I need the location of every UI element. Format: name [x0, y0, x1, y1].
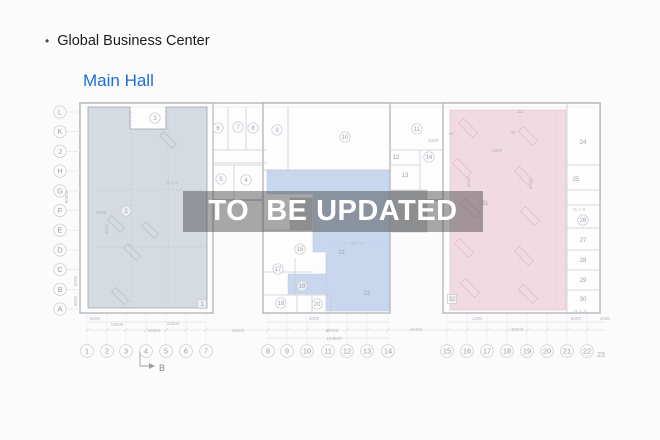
row-axis-label: K [57, 127, 62, 136]
room-number: 20 [314, 302, 321, 308]
col-axis-label: 20 [543, 347, 551, 356]
watermark-overlay: TO BE UPDATED [183, 191, 483, 232]
section-marker-arrow-icon [149, 363, 155, 369]
col-axis-label: 17 [483, 347, 491, 356]
room-number: 28 [580, 258, 587, 264]
plan-annotation: G + 3 [351, 241, 363, 247]
col-axis-label: 14 [384, 347, 392, 356]
section-marker-label: B [159, 363, 165, 373]
room-number: 19 [299, 284, 306, 290]
dimension-label: 6000 [466, 176, 471, 187]
col-axis-label: 15 [443, 347, 451, 356]
dimension-label: 36000 [148, 328, 161, 333]
row-axis-label: C [57, 265, 63, 274]
dimension-label: 1300 [472, 316, 483, 321]
room-number: 30 [580, 297, 587, 303]
dimension-label: 18000 [167, 321, 180, 326]
dimension-label: 18400 [410, 327, 423, 332]
col-axis-label: 22 [583, 347, 591, 356]
plan-annotation: 1000 [428, 138, 439, 144]
col-axis-label: 21 [563, 347, 571, 356]
col-axis-label: 7 [204, 347, 208, 356]
plan-annotation: G + 3 [574, 309, 586, 315]
dimension-label: 6000 [73, 295, 78, 306]
col-axis-label: 10 [303, 347, 311, 356]
col-axis-label: 12 [343, 347, 351, 356]
col-axis-label: 8 [266, 347, 270, 356]
room-number: 26 [580, 218, 587, 224]
room-number: 14 [426, 155, 433, 161]
dimension-label: 6000 [73, 275, 78, 286]
col-axis-label: 5 [164, 347, 168, 356]
room-number: 11 [414, 127, 421, 133]
plan-annotation: 1900 [492, 148, 503, 154]
plan-annotation: G + 3 [166, 180, 178, 186]
plan-annotation: 23 [517, 109, 523, 115]
row-axis-label: E [57, 226, 62, 235]
plan-annotation: 45° [510, 130, 517, 136]
room-number: 18 [278, 301, 285, 307]
col-axis-label: 11 [324, 347, 332, 356]
row-axis-label: D [57, 245, 63, 254]
row-axis-label: A [57, 305, 62, 314]
col-axis-label: 1 [85, 347, 89, 356]
dimension-label: 3000 [104, 223, 109, 234]
room-number: 29 [580, 278, 587, 284]
col-axis-label: 6 [184, 347, 188, 356]
col-axis-label: 4 [144, 347, 148, 356]
room-number: 32 [449, 297, 456, 303]
room-number: 22 [364, 291, 371, 297]
row-axis-label: L [58, 108, 62, 117]
col-axis-label: 16 [463, 347, 471, 356]
room-number: 17 [275, 267, 282, 273]
dimension-label: 6000 [571, 316, 582, 321]
row-axis-label: B [57, 285, 62, 294]
col-axis-label: 13 [363, 347, 371, 356]
row-axis-label: G [57, 186, 63, 195]
dimension-label: 18000 [111, 322, 124, 327]
row-axis-label: H [57, 167, 62, 176]
col-axis-label: 9 [285, 347, 289, 356]
plan-annotation: G + 3 [573, 207, 585, 213]
col-axis-label: 19 [523, 347, 531, 356]
dimension-label: 2000 [309, 316, 320, 321]
page: • Global Business Center Main Hall [0, 0, 660, 440]
room-number: 10 [342, 135, 349, 141]
room-number: 24 [580, 140, 587, 146]
room-number: 27 [580, 238, 587, 244]
dimension-label: 60000 [64, 190, 69, 203]
plan-annotation: 45° [448, 131, 455, 137]
dimension-label: 6000 [90, 316, 101, 321]
col-axis-label: 3 [124, 347, 128, 356]
row-axis-label: J [58, 147, 62, 156]
col-axis-label: 2 [105, 347, 109, 356]
dimension-label: 18000 [232, 328, 245, 333]
room-number: 12 [393, 155, 400, 161]
room-number: 13 [402, 173, 409, 179]
plan-annotation: 2000 [96, 210, 107, 216]
room-number: 25 [573, 177, 580, 183]
row-axis-label: F [58, 206, 63, 215]
dimension-label: 3000 [600, 316, 611, 321]
col-axis-label: 18 [503, 347, 511, 356]
col-axis-label: 23 [597, 352, 605, 359]
room-number: 15 [297, 247, 304, 253]
dimension-label: 45000 [511, 327, 524, 332]
dimension-label: 36000 [326, 328, 339, 333]
room-number: 21 [339, 250, 346, 256]
dimension-label: 153663 [326, 336, 342, 341]
